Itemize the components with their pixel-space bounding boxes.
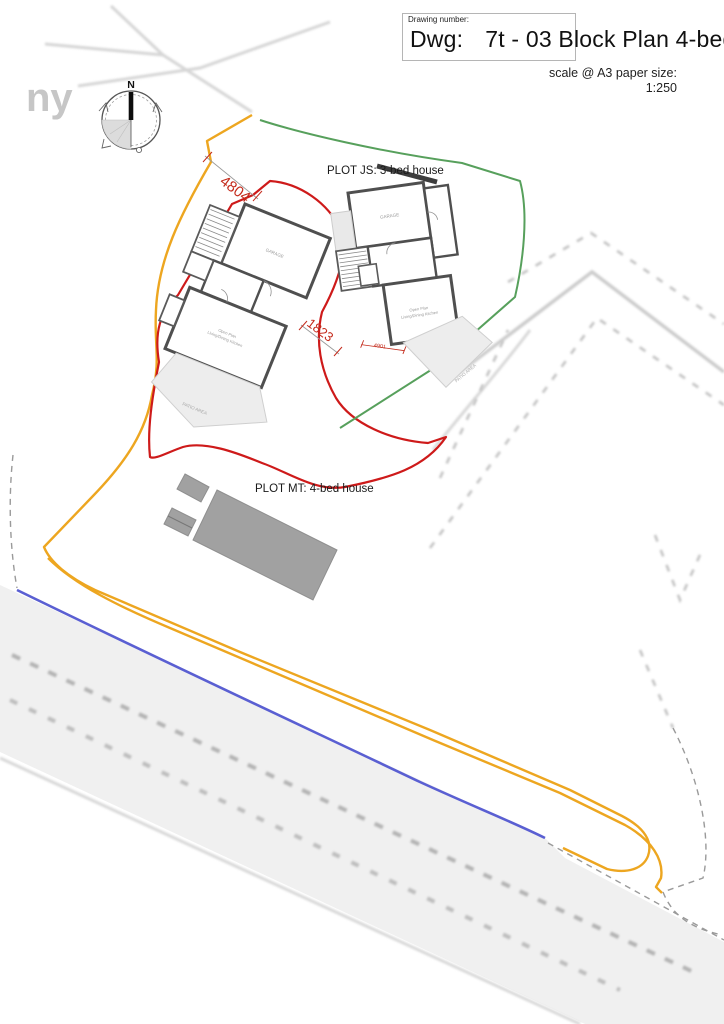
drawing-title: Dwg:7t - 03 Block Plan 4-bed [410, 26, 720, 53]
dwg-prefix: Dwg: [410, 26, 463, 52]
background-dashed-boundaries [430, 233, 724, 728]
dashed-boundary [640, 650, 673, 728]
compass-shaded-quadrant [102, 120, 131, 149]
plot-mt-label: PLOT MT: 4-bed house [255, 483, 374, 495]
drawing-title-text: 7t - 03 Block Plan 4-bed [485, 26, 724, 52]
right-house-wc [358, 264, 379, 286]
site-plan-drawing: 4804 1823 GARAGE Open Plan Living/Dining… [0, 0, 724, 1024]
dimension-4804-label: 4804 [217, 173, 254, 207]
background-road-line [111, 6, 163, 55]
site-edge-dashed [663, 728, 706, 892]
scale-value: 1:250 [646, 81, 677, 95]
north-arrow-compass: N [99, 79, 162, 153]
right-house-floor-plan: GARAGE Open Plan Living/Dining Kitchen P… [328, 176, 497, 400]
plot-js-label: PLOT JS: 3-bed house [327, 165, 444, 177]
background-road-line [78, 22, 330, 86]
outbuilding-block [177, 474, 209, 502]
drawing-number-label: Drawing number: [408, 15, 469, 24]
compass-south-marker [136, 147, 141, 152]
block-plan-page: ny [0, 0, 724, 1024]
compass-north-label: N [127, 79, 135, 91]
background-map-text: ny [26, 76, 73, 121]
proposed-house-block [193, 490, 337, 600]
background-road-line [45, 44, 252, 112]
scale-label: scale @ A3 paper size: [549, 66, 677, 80]
dimension-1823-label: 1823 [304, 315, 336, 344]
background-building-outline [452, 272, 724, 378]
dashed-boundary [655, 535, 703, 600]
site-edge-dashed [10, 455, 17, 588]
road-surface [0, 585, 724, 1024]
dimension-4901-label: 4901 [373, 343, 386, 351]
